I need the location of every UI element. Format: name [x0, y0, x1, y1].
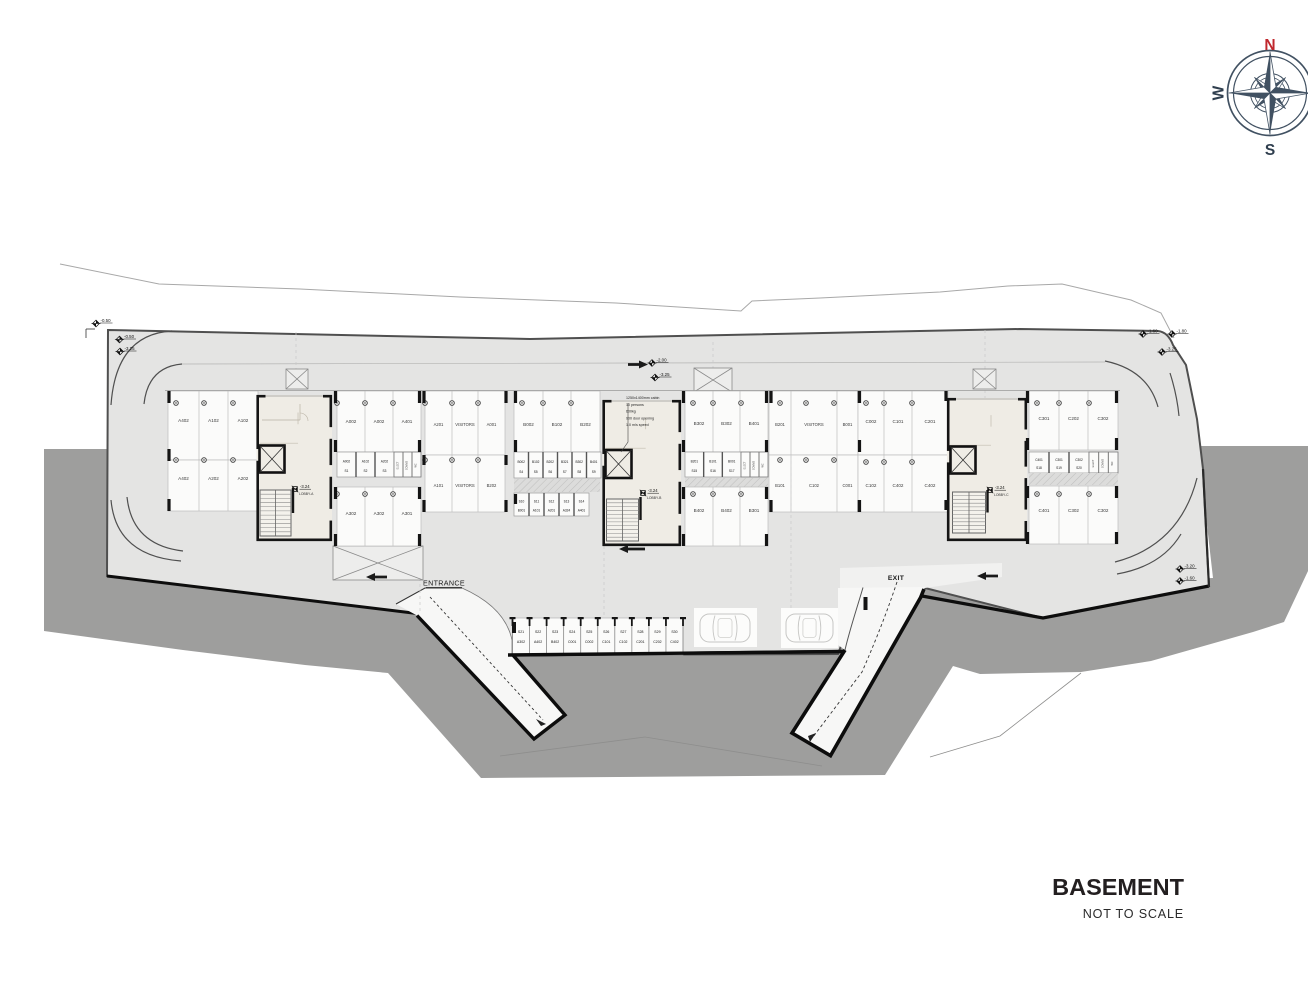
svg-text:C302: C302: [1098, 508, 1109, 513]
svg-text:B101: B101: [709, 460, 717, 464]
svg-text:A002: A002: [346, 419, 357, 424]
svg-text:B101: B101: [775, 483, 785, 488]
svg-text:EXIT: EXIT: [888, 575, 905, 582]
svg-text:A401: A401: [402, 419, 413, 424]
svg-text:BASEMENT: BASEMENT: [1052, 874, 1185, 900]
svg-text:C202: C202: [653, 640, 661, 644]
svg-text:ENTRANCE: ENTRANCE: [423, 579, 465, 588]
svg-text:S15: S15: [691, 469, 697, 473]
svg-text:-0.50: -0.50: [124, 334, 135, 339]
svg-text:-3.24: -3.24: [648, 488, 658, 493]
svg-text:C402: C402: [670, 640, 678, 644]
svg-text:B302: B302: [694, 421, 705, 426]
svg-text:A102: A102: [362, 460, 370, 464]
svg-text:S28: S28: [637, 630, 643, 634]
svg-text:S25: S25: [586, 630, 592, 634]
svg-text:B102: B102: [532, 460, 540, 464]
svg-text:S16: S16: [710, 469, 716, 473]
svg-text:B402: B402: [694, 508, 705, 513]
svg-text:C102: C102: [866, 483, 877, 488]
svg-text:S30: S30: [671, 630, 677, 634]
svg-text:S26: S26: [603, 630, 609, 634]
svg-text:S17: S17: [729, 469, 735, 473]
svg-text:B401: B401: [749, 421, 760, 426]
svg-text:B001: B001: [843, 422, 853, 427]
svg-text:-3.25: -3.25: [125, 346, 136, 351]
svg-text:-3.24: -3.24: [300, 484, 310, 489]
svg-text:A101: A101: [533, 508, 541, 512]
svg-text:B002: B002: [518, 460, 526, 464]
svg-text:B302: B302: [721, 421, 732, 426]
svg-text:A201: A201: [434, 422, 444, 427]
svg-text:COMMS: COMMS: [753, 461, 756, 471]
svg-text:S5: S5: [534, 470, 538, 474]
svg-text:A402: A402: [534, 640, 542, 644]
svg-text:S3: S3: [383, 469, 387, 473]
svg-text:S22: S22: [535, 630, 541, 634]
svg-text:A101: A101: [434, 483, 444, 488]
svg-text:B001: B001: [728, 460, 736, 464]
svg-text:-1.60: -1.60: [1185, 576, 1196, 581]
svg-text:S23: S23: [552, 630, 558, 634]
svg-text:S19: S19: [1056, 466, 1062, 470]
svg-text:S8: S8: [577, 470, 581, 474]
svg-text:C402: C402: [925, 483, 936, 488]
svg-text:VISITORS: VISITORS: [804, 422, 824, 427]
svg-text:10 persons: 10 persons: [626, 403, 644, 407]
svg-text:ELECT: ELECT: [744, 461, 747, 469]
svg-text:B402: B402: [721, 508, 732, 513]
svg-text:C402: C402: [893, 483, 904, 488]
svg-text:A302: A302: [346, 511, 357, 516]
svg-text:S13: S13: [564, 500, 570, 504]
svg-text:WC: WC: [415, 463, 418, 467]
svg-text:C201: C201: [925, 419, 936, 424]
svg-text:C102: C102: [809, 483, 820, 488]
svg-text:B321: B321: [561, 460, 569, 464]
svg-text:A202: A202: [381, 460, 389, 464]
svg-text:1250x1400mm cabin: 1250x1400mm cabin: [626, 396, 659, 400]
svg-text:C301: C301: [1055, 458, 1063, 462]
svg-text:A402: A402: [178, 418, 189, 423]
svg-text:-2.00: -2.00: [657, 358, 668, 363]
svg-text:B202: B202: [580, 422, 591, 427]
svg-text:C001: C001: [842, 483, 853, 488]
svg-text:ELECT: ELECT: [397, 461, 400, 469]
svg-text:A102: A102: [238, 418, 249, 423]
svg-text:C002: C002: [866, 419, 877, 424]
svg-text:S1: S1: [345, 469, 349, 473]
svg-text:S29: S29: [654, 630, 660, 634]
svg-text:-3.25: -3.25: [660, 372, 671, 377]
svg-text:S: S: [1265, 142, 1275, 159]
svg-text:S18: S18: [1036, 466, 1042, 470]
svg-text:B201: B201: [691, 460, 699, 464]
svg-text:C101: C101: [893, 419, 904, 424]
svg-text:B301: B301: [749, 508, 760, 513]
svg-text:C301: C301: [1039, 416, 1050, 421]
svg-text:C302: C302: [1068, 508, 1079, 513]
svg-text:C001: C001: [568, 640, 576, 644]
svg-text:A202: A202: [208, 476, 219, 481]
svg-text:LOBBY-B: LOBBY-B: [647, 496, 662, 500]
svg-text:S10: S10: [519, 500, 525, 504]
svg-text:ELECT: ELECT: [1092, 459, 1095, 467]
svg-text:A402: A402: [178, 476, 189, 481]
svg-text:A202: A202: [238, 476, 249, 481]
svg-text:A001: A001: [487, 422, 497, 427]
svg-text:A102: A102: [208, 418, 219, 423]
svg-text:C302: C302: [1075, 458, 1083, 462]
svg-text:-1.60: -1.60: [1148, 329, 1159, 334]
svg-text:S7: S7: [563, 470, 567, 474]
svg-text:-3.25: -3.25: [1167, 347, 1178, 352]
svg-text:COMMS: COMMS: [1102, 459, 1105, 469]
svg-text:B302: B302: [576, 460, 584, 464]
svg-text:WC: WC: [762, 463, 765, 467]
svg-text:B402: B402: [551, 640, 559, 644]
svg-text:1.0 m/s speed: 1.0 m/s speed: [626, 423, 649, 427]
svg-text:B401: B401: [590, 460, 598, 464]
svg-text:VISITORS: VISITORS: [455, 422, 475, 427]
svg-text:LOBBY-C: LOBBY-C: [994, 493, 1009, 497]
svg-text:C401: C401: [1035, 458, 1043, 462]
svg-text:S12: S12: [549, 500, 555, 504]
svg-text:VISITORS: VISITORS: [455, 483, 475, 488]
svg-text:-1.80: -1.80: [1177, 329, 1188, 334]
svg-text:C201: C201: [636, 640, 644, 644]
svg-text:LOBBY-A: LOBBY-A: [299, 492, 314, 496]
svg-text:C401: C401: [1039, 508, 1050, 513]
svg-text:A002: A002: [374, 419, 385, 424]
svg-text:S24: S24: [569, 630, 575, 634]
svg-text:B001: B001: [518, 508, 526, 512]
svg-text:A302: A302: [517, 640, 525, 644]
svg-text:S2: S2: [364, 469, 368, 473]
svg-text:S4: S4: [519, 470, 523, 474]
svg-text:900 door opening: 900 door opening: [626, 416, 654, 420]
svg-text:COMMS: COMMS: [406, 461, 409, 471]
svg-text:C002: C002: [585, 640, 593, 644]
svg-text:C102: C102: [619, 640, 627, 644]
svg-text:W: W: [1211, 85, 1228, 100]
svg-text:B202: B202: [547, 460, 555, 464]
svg-text:A201: A201: [548, 508, 556, 512]
svg-text:C101: C101: [602, 640, 610, 644]
svg-text:A002: A002: [343, 460, 351, 464]
svg-text:B202: B202: [487, 483, 497, 488]
svg-text:S14: S14: [579, 500, 585, 504]
svg-text:S6: S6: [548, 470, 552, 474]
svg-text:WC: WC: [1111, 461, 1114, 465]
svg-text:A324: A324: [563, 508, 571, 512]
svg-text:-0.50: -0.50: [101, 318, 112, 323]
svg-text:S21: S21: [518, 630, 524, 634]
svg-text:A302: A302: [374, 511, 385, 516]
svg-text:-3.20: -3.20: [1185, 564, 1196, 569]
svg-text:A401: A401: [578, 508, 586, 512]
svg-text:-3.24: -3.24: [995, 485, 1005, 490]
svg-text:C302: C302: [1098, 416, 1109, 421]
svg-text:S11: S11: [534, 500, 540, 504]
svg-text:B002: B002: [523, 422, 534, 427]
svg-text:600kg: 600kg: [626, 410, 636, 414]
svg-text:C202: C202: [1068, 416, 1079, 421]
svg-text:A301: A301: [402, 511, 413, 516]
svg-text:NOT TO SCALE: NOT TO SCALE: [1083, 907, 1184, 921]
svg-text:S9: S9: [592, 470, 596, 474]
svg-text:S27: S27: [620, 630, 626, 634]
svg-text:B102: B102: [552, 422, 563, 427]
svg-text:B201: B201: [775, 422, 785, 427]
svg-text:N: N: [1264, 37, 1275, 54]
svg-text:S20: S20: [1076, 466, 1082, 470]
